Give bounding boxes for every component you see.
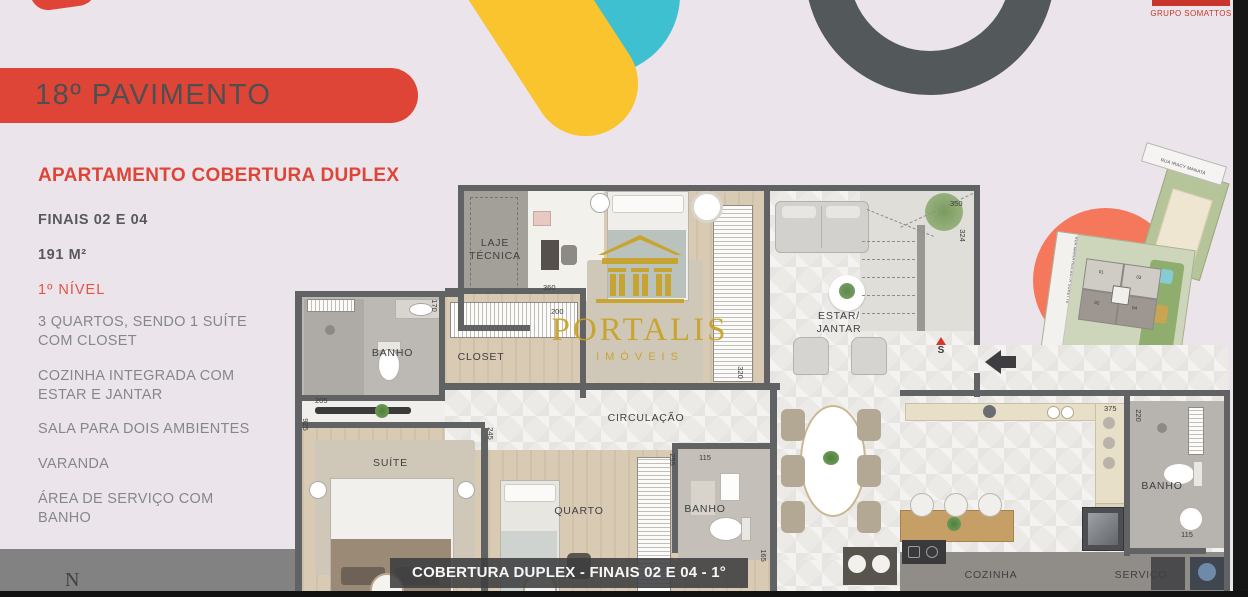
dimension-label: 320 xyxy=(736,366,745,379)
fridge-highlight xyxy=(1088,513,1118,545)
wall xyxy=(458,185,980,191)
gourmet-counter xyxy=(843,547,897,585)
banho-suite-showerhead xyxy=(325,325,335,335)
watermark-tagline: IMÓVEIS xyxy=(540,351,740,363)
dimension-label: 115 xyxy=(1181,530,1193,539)
screen-edge-right xyxy=(1233,0,1248,597)
wall xyxy=(445,383,780,390)
room-label-banho-servico: BANHO xyxy=(1123,480,1201,493)
banho-quarto-toilet xyxy=(709,517,743,541)
screen-edge-bottom xyxy=(0,591,1248,597)
bottom-gray-band: N xyxy=(0,549,307,597)
wall xyxy=(900,390,1230,396)
suite-nightstand xyxy=(457,481,475,499)
feature-item: VARANDA xyxy=(38,455,278,474)
dimension-label: 115 xyxy=(699,453,711,462)
dark-ring-shape xyxy=(805,0,1055,95)
dimension-label: 205 xyxy=(315,396,328,405)
red-corner-shape xyxy=(28,0,98,12)
watermark-name: PORTALIS xyxy=(540,312,740,349)
stair-stringer xyxy=(917,225,925,331)
wall xyxy=(458,325,530,331)
fridge xyxy=(1082,507,1124,551)
kitchen-sink xyxy=(1061,406,1074,419)
feature-item: COZINHA INTEGRADA COM ESTAR E JANTAR xyxy=(38,367,278,405)
range-unit xyxy=(902,540,946,564)
dining-chair xyxy=(781,501,805,533)
island-plant xyxy=(947,517,961,531)
suite-nightstand xyxy=(309,481,327,499)
wall xyxy=(672,443,770,449)
brand-name: GRUPO SOMATTOS xyxy=(1146,9,1236,18)
feature-item: 3 QUARTOS, SENDO 1 SUÍTE COM CLOSET xyxy=(38,313,278,351)
gourmet-sink xyxy=(848,555,866,573)
wall xyxy=(770,383,777,592)
banho-servico-shower-screen xyxy=(1188,407,1204,455)
sideboard xyxy=(315,407,411,414)
island-stool xyxy=(910,493,934,517)
portalis-temple-icon xyxy=(594,235,686,307)
plan-caption: COBERTURA DUPLEX - FINAIS 02 E 04 - 1° N… xyxy=(390,558,748,588)
portalis-watermark: PORTALIS IMÓVEIS xyxy=(540,235,740,363)
stove-burner xyxy=(1103,417,1115,429)
dining-chair xyxy=(781,455,805,487)
room-label-servico: SERVIÇO xyxy=(1101,569,1181,582)
dining-chair xyxy=(781,409,805,441)
island-stool xyxy=(978,493,1002,517)
room-label-cozinha: COZINHA xyxy=(951,569,1031,582)
wall xyxy=(974,187,980,345)
stove-burner xyxy=(1103,457,1115,469)
entry-arrow-icon xyxy=(985,350,1019,374)
side-table-plant xyxy=(839,283,855,299)
feature-item: SALA PARA DOIS AMBIENTES xyxy=(38,420,278,439)
dining-chair xyxy=(857,501,881,533)
stair-step xyxy=(862,259,915,260)
kitchen-sink xyxy=(1047,406,1060,419)
stair-step xyxy=(862,277,915,278)
feature-item: ÁREA DE SERVIÇO COM BANHO xyxy=(38,490,278,528)
stair-step xyxy=(862,295,915,296)
dimension-label: 165 xyxy=(759,549,768,562)
stair-label: S xyxy=(936,345,946,356)
dimension-label: 220 xyxy=(1134,409,1143,422)
banho-servico-showerhead xyxy=(1157,423,1167,433)
gourmet-sink xyxy=(872,555,890,573)
banho-quarto-toilet-tank xyxy=(741,517,751,541)
nightstand-right xyxy=(691,191,723,223)
floor-banner-title: 18º PAVIMENTO xyxy=(0,68,418,123)
room-label-laje-tecnica: LAJE TÉCNICA xyxy=(455,237,535,263)
brand-logo-bar xyxy=(1152,0,1230,6)
banho-quarto-vanity xyxy=(720,473,740,501)
nightstand-left xyxy=(590,193,610,213)
room-label-estar-jantar: ESTAR/ JANTAR xyxy=(800,310,878,336)
apartment-title: APARTAMENTO COBERTURA DUPLEX xyxy=(38,165,448,187)
wall xyxy=(295,291,302,592)
wall xyxy=(1130,548,1206,554)
dimension-label: 375 xyxy=(1104,404,1117,413)
sofa-pillow xyxy=(782,206,816,218)
sofa-cushion-line xyxy=(821,206,822,248)
room-label-closet: CLOSET xyxy=(445,351,517,364)
washing-machine xyxy=(1190,557,1224,590)
room-label-banho-quarto: BANHO xyxy=(667,503,743,516)
room-label-banho-suite: BANHO xyxy=(355,347,430,360)
dimension-label: 200 xyxy=(551,307,564,316)
sideboard-plant xyxy=(375,404,389,418)
dimension-label: 324 xyxy=(958,229,967,242)
stove-burner xyxy=(1103,437,1115,449)
shower-suite-screen xyxy=(307,299,355,312)
wall xyxy=(302,422,485,428)
dimension-label: 255 xyxy=(668,453,677,466)
dining-chair xyxy=(857,409,881,441)
sofa-pillow xyxy=(826,206,860,218)
dining-plant xyxy=(823,451,839,465)
dimension-label: 925 xyxy=(301,418,310,431)
stair-step xyxy=(862,241,915,242)
bed-pillows xyxy=(612,195,684,213)
floor-plan: S xyxy=(295,185,1232,592)
stair-direction-marker: S xyxy=(936,337,946,356)
quarto-bed-pillow xyxy=(504,484,556,502)
room-label-suite: SUÍTE xyxy=(353,457,428,470)
wall xyxy=(1224,390,1230,592)
dimension-label: 245 xyxy=(486,427,495,440)
washer-door xyxy=(1198,563,1216,581)
range-burner xyxy=(908,546,920,558)
kitchen-cooktop xyxy=(983,405,996,418)
armchair xyxy=(851,337,887,375)
wall xyxy=(764,187,770,389)
room-label-circulacao: CIRCULAÇÃO xyxy=(600,412,692,425)
room-label-quarto: QUARTO xyxy=(541,505,617,518)
range-burner xyxy=(926,546,938,558)
compass-north-label: N xyxy=(65,569,79,592)
island-stool xyxy=(944,493,968,517)
armchair xyxy=(793,337,829,375)
wall xyxy=(302,291,460,297)
sofa xyxy=(775,201,869,253)
dimension-label: 360 xyxy=(543,283,556,292)
brochure-page: GRUPO SOMATTOS 18º PAVIMENTO APARTAMENTO… xyxy=(0,0,1248,597)
dimension-label: 170 xyxy=(430,299,439,312)
bedroom-shelf-item xyxy=(533,211,551,226)
dining-chair xyxy=(857,455,881,487)
floor-banner: 18º PAVIMENTO xyxy=(0,68,418,123)
dimension-label: 350 xyxy=(950,199,963,208)
wall xyxy=(1124,395,1130,556)
banho-servico-sink xyxy=(1179,507,1203,531)
stair-up-arrow-icon xyxy=(936,337,946,345)
